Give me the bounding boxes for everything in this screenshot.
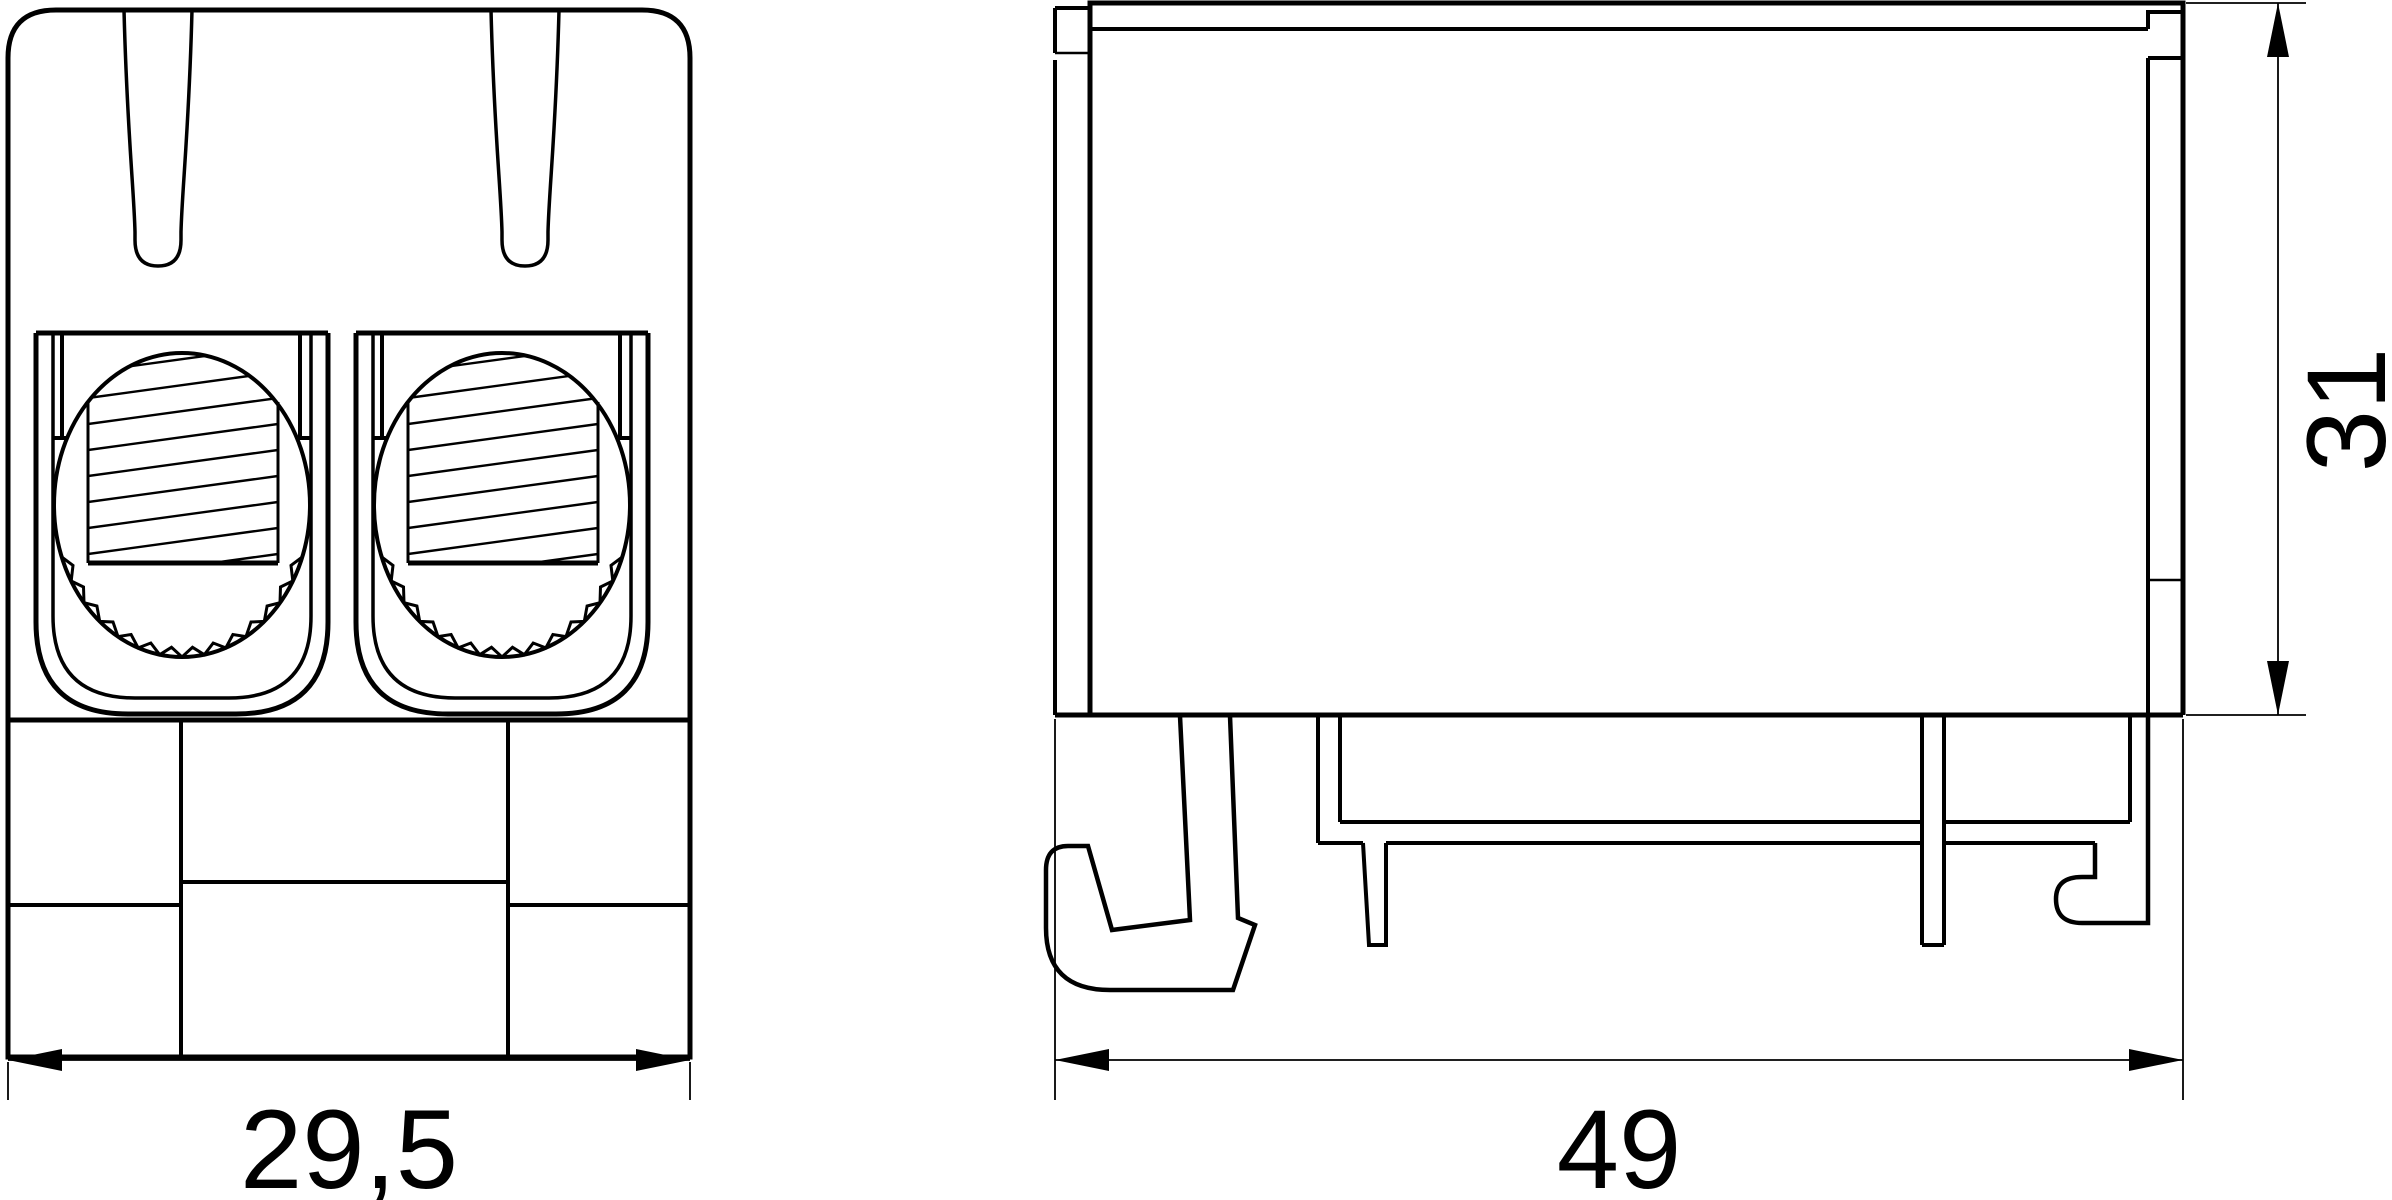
dimension-label-front-width: 29,5 <box>240 1087 458 1200</box>
din-clip-hook <box>1046 716 1255 990</box>
screw-terminal-left <box>36 320 328 714</box>
screw-knurl <box>382 557 623 657</box>
din-rail-mount <box>1046 715 2148 990</box>
front-view: 29,5 <box>8 10 690 1200</box>
terminal-block-drawing: 29,5 <box>0 0 2392 1200</box>
left-end-flange <box>1055 8 1090 715</box>
arrowhead-right <box>636 1049 690 1071</box>
arrowhead-right <box>2129 1049 2183 1071</box>
right-end-flange <box>2148 58 2183 715</box>
side-width-dimension: 49 <box>1055 719 2183 1200</box>
front-width-dimension: 29,5 <box>8 1049 690 1200</box>
side-view: 49 31 <box>1046 3 2392 1200</box>
front-housing-outline <box>8 10 690 1057</box>
screw-knurl <box>62 557 303 657</box>
dimension-label-side-width: 49 <box>1557 1087 1682 1200</box>
test-probe-funnel-right <box>491 10 559 266</box>
cover-top-step <box>2148 12 2183 29</box>
technical-drawing-canvas: 29,5 <box>0 0 2392 1200</box>
test-probe-funnel-left <box>124 10 192 266</box>
dimension-label-side-height: 31 <box>2284 348 2392 473</box>
screw-terminal-right <box>356 320 648 714</box>
arrowhead-left <box>8 1049 62 1071</box>
arrowhead-top <box>2267 3 2289 57</box>
arrowhead-bottom <box>2267 661 2289 715</box>
fixed-rail-claw <box>2056 715 2148 923</box>
support-leg-left <box>1363 843 1386 945</box>
side-housing-outline <box>1090 3 2183 715</box>
front-base-block <box>8 720 690 1057</box>
side-height-dimension: 31 <box>2186 3 2392 715</box>
arrowhead-left <box>1055 1049 1109 1071</box>
